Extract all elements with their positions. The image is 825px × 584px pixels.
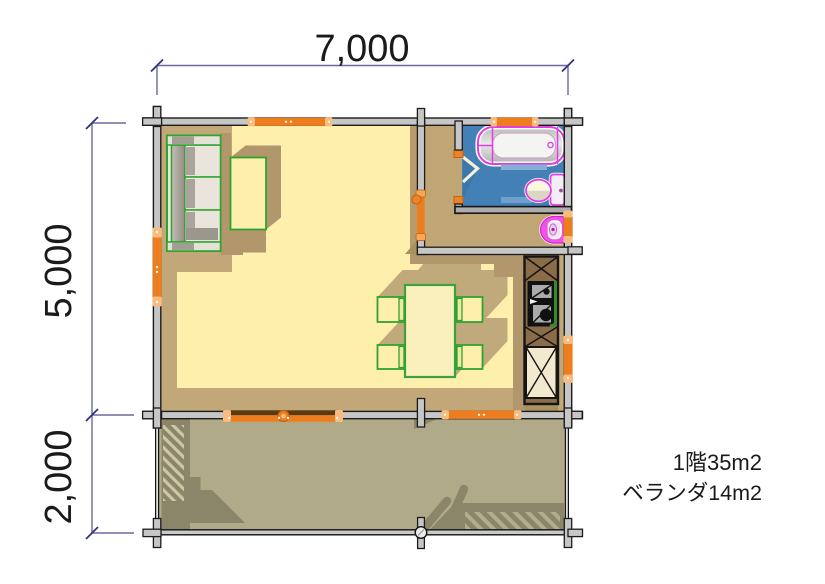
svg-text:1階35m2: 1階35m2 bbox=[673, 450, 762, 475]
svg-text:ベランダ14m2: ベランダ14m2 bbox=[622, 481, 762, 505]
svg-text:2,000: 2,000 bbox=[38, 429, 80, 524]
svg-text:5,000: 5,000 bbox=[38, 223, 80, 318]
svg-text:7,000: 7,000 bbox=[314, 28, 409, 70]
